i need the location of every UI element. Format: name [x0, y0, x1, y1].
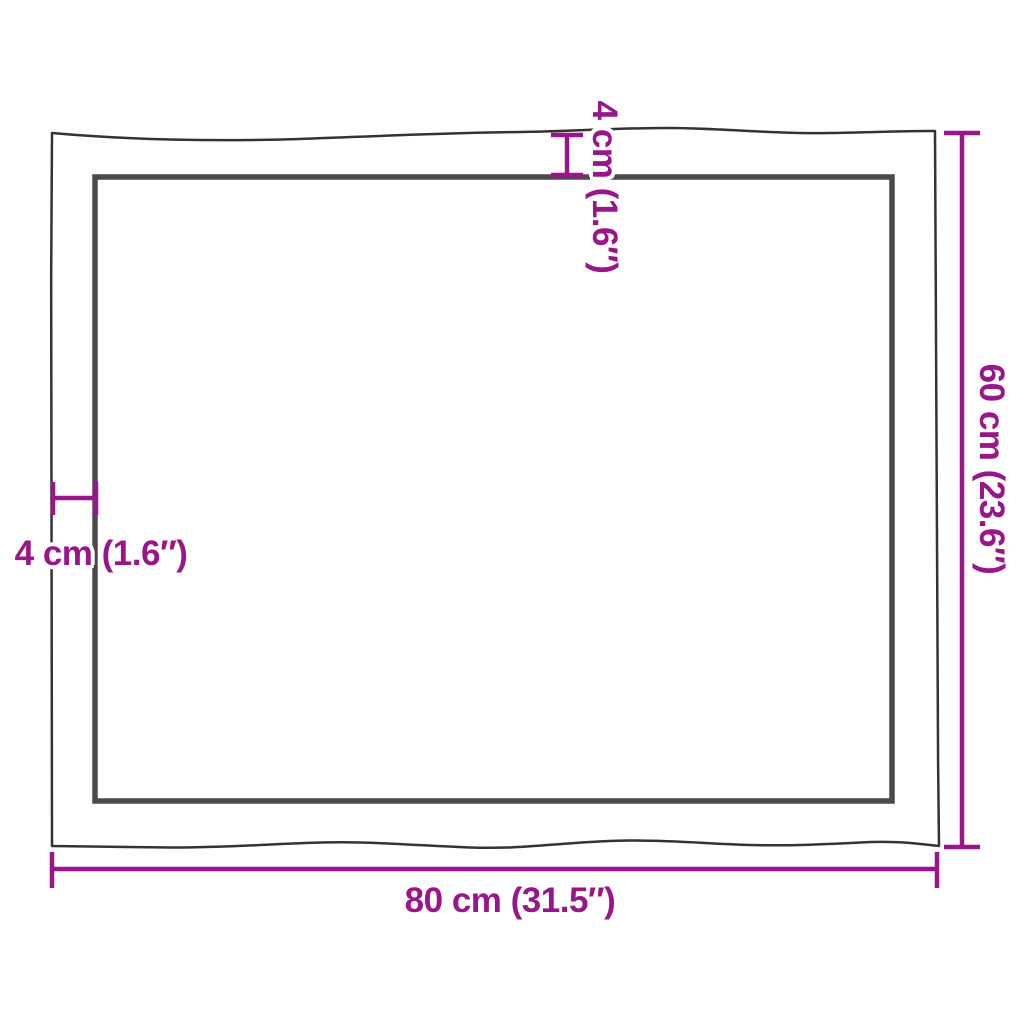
tabletop-diagram-svg: [0, 0, 1024, 1024]
height-dimension-label: 60 cm (23.6″): [971, 364, 1011, 575]
thickness-side-dimension: [53, 482, 96, 515]
thickness-side-dimension-label: 4 cm (1.6″): [15, 534, 188, 574]
tabletop-inner-edge: [95, 177, 892, 801]
dimension-diagram: 80 cm (31.5″) 60 cm (23.6″) 4 cm (1.6″) …: [0, 0, 1024, 1024]
thickness-top-dimension-label: 4 cm (1.6″): [584, 101, 624, 274]
thickness-top-dimension: [551, 135, 583, 175]
width-dimension-label: 80 cm (31.5″): [405, 881, 616, 921]
tabletop-outer-edge: [51, 128, 939, 848]
